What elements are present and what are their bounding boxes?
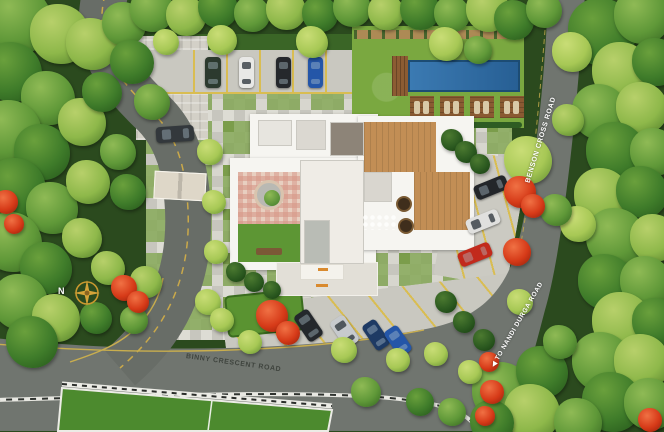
tree — [207, 25, 237, 55]
car-windshield — [183, 128, 189, 139]
tree — [453, 311, 475, 333]
car-windshield — [366, 324, 379, 336]
flowering-tree — [4, 214, 24, 234]
tree — [66, 160, 110, 204]
car-windshield — [478, 184, 489, 196]
car-windshield — [334, 320, 347, 332]
car-windshield — [162, 129, 172, 140]
car-windshield — [208, 79, 218, 84]
tree — [540, 194, 572, 226]
tree — [100, 134, 136, 170]
tree — [197, 139, 223, 165]
tree — [82, 72, 122, 112]
car-windshield — [279, 62, 289, 69]
car — [205, 57, 221, 88]
site-plan-canvas: BINNY CRESCENT ROAD BENSON CROSS ROAD ◀ … — [0, 0, 664, 432]
car-windshield — [311, 62, 321, 69]
tree — [62, 218, 102, 258]
tree — [134, 84, 170, 120]
tree — [464, 36, 492, 64]
tree — [470, 154, 490, 174]
tree — [110, 40, 154, 84]
tree — [263, 281, 281, 299]
car-windshield — [388, 330, 401, 342]
car-windshield — [279, 79, 289, 84]
flowering-tree — [503, 238, 531, 266]
car-windshield — [242, 62, 252, 69]
tree — [406, 388, 434, 416]
car-windshield — [496, 178, 504, 189]
tree — [210, 308, 234, 332]
flowering-tree — [521, 194, 545, 218]
north-label: N — [58, 286, 65, 296]
car-windshield — [307, 328, 319, 338]
tree — [429, 27, 463, 61]
car — [155, 125, 194, 144]
tree — [204, 240, 228, 264]
flowering-tree — [638, 408, 662, 432]
car-windshield — [375, 337, 386, 347]
car — [239, 57, 254, 88]
car-windshield — [462, 251, 473, 263]
tree — [234, 0, 270, 32]
tree — [351, 377, 381, 407]
car-windshield — [488, 212, 496, 223]
tree — [238, 330, 262, 354]
flowering-tree — [127, 291, 149, 313]
tree — [424, 342, 448, 366]
tree — [226, 262, 246, 282]
tree — [6, 316, 58, 368]
car-windshield — [470, 218, 481, 230]
tree — [552, 32, 592, 72]
tree — [331, 337, 357, 363]
tree — [202, 190, 226, 214]
tree — [153, 29, 179, 55]
entrance-gate-canopy — [153, 171, 206, 202]
flowering-tree — [475, 406, 495, 426]
tree — [110, 174, 146, 210]
car-windshield — [242, 79, 252, 84]
flowering-tree — [480, 380, 504, 404]
tree — [244, 272, 264, 292]
flowering-tree — [276, 321, 300, 345]
tree — [438, 398, 466, 426]
tree — [386, 348, 410, 372]
car-windshield — [208, 62, 218, 69]
car — [276, 57, 291, 88]
car — [308, 57, 323, 88]
car-windshield — [298, 314, 311, 326]
tree — [296, 26, 328, 58]
tree — [552, 104, 584, 136]
tree — [473, 329, 495, 351]
compass-rose-icon — [72, 278, 102, 308]
car-windshield — [311, 79, 321, 84]
tree — [543, 325, 577, 359]
car-windshield — [480, 245, 488, 256]
tree — [435, 291, 457, 313]
